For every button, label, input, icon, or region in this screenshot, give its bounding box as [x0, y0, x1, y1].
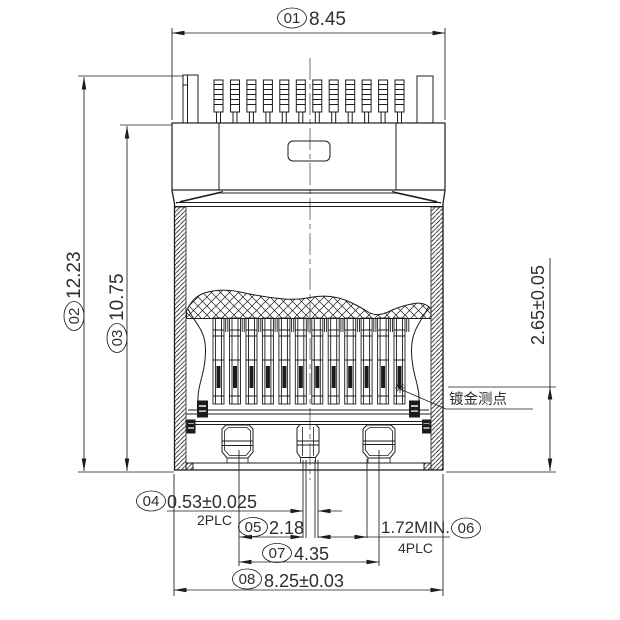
pin [346, 80, 355, 123]
pin [362, 80, 371, 123]
contact-strip [213, 318, 228, 404]
pin [296, 80, 305, 123]
dim-06: 1.72MIN. 06 4PLC [318, 518, 481, 556]
pin [263, 80, 272, 123]
dim-06-places: 4PLC [398, 540, 433, 556]
drawing-canvas: 01 8.45 02 12.23 03 10.75 [0, 0, 620, 620]
gold-test-point-label: 镀金测点 [449, 391, 507, 408]
contact-strip [262, 318, 277, 404]
test-point-marker [395, 383, 405, 393]
contact-strip [328, 318, 343, 404]
contacts [213, 318, 409, 404]
dim-01-value: 8.45 [309, 9, 346, 30]
cavity-wall-left [188, 309, 206, 403]
pin [395, 80, 404, 123]
dim-04-value: 0.53±0.025 [167, 492, 257, 512]
contact-strip [361, 318, 376, 404]
balloon-04-id: 04 [143, 493, 160, 510]
side-post-right [417, 76, 433, 123]
contact-strip [378, 318, 393, 404]
balloon-02-id: 02 [66, 308, 83, 325]
rubber-seal-crosshatch [187, 290, 432, 318]
side-post-left-detail [183, 75, 188, 123]
pin [313, 80, 322, 123]
dim-03-value: 10.75 [107, 273, 128, 321]
post-right-ribs [363, 441, 395, 445]
base-plate-lines [186, 410, 431, 425]
pin [247, 80, 256, 123]
dim-06-value: 1.72MIN. [381, 518, 450, 537]
dim-05-value: 2.18 [269, 518, 304, 538]
pin [280, 80, 289, 123]
balloon-05-id: 05 [245, 519, 262, 536]
housing-outline [172, 123, 445, 190]
contact-strip [230, 318, 245, 404]
cavity-wall-right [411, 306, 429, 403]
dim-right-height: 2.65±0.05 [446, 258, 556, 472]
dim-04-places: 2PLC [197, 512, 232, 528]
balloon-08-id: 08 [239, 571, 256, 588]
pin [214, 80, 223, 123]
pin [231, 80, 240, 123]
post-left-ribs [222, 441, 253, 446]
pin [379, 80, 388, 123]
dim-02-value: 12.23 [64, 251, 85, 299]
extension-lines [78, 76, 183, 472]
post-left-inner [225, 428, 251, 456]
dim-03: 03 10.75 [107, 125, 172, 471]
dim-07: 07 4.35 [239, 544, 379, 565]
shell-wall-left [175, 207, 187, 470]
dim-05: 05 2.18 [239, 518, 305, 539]
top-pins [183, 75, 433, 123]
housing-inner-edges [219, 123, 396, 190]
balloon-03-id: 03 [109, 330, 126, 347]
pin [329, 80, 338, 123]
shell-rim [175, 203, 444, 207]
side-post-left [183, 75, 198, 123]
contact-strip [312, 318, 327, 404]
dim-07-value: 4.35 [294, 544, 329, 564]
block-right [410, 401, 420, 417]
housing-slot [288, 141, 330, 161]
balloon-06-id: 06 [458, 520, 475, 537]
block-left [198, 401, 208, 417]
dim-right-value: 2.65±0.05 [528, 265, 548, 345]
contact-strip [295, 318, 310, 404]
contact-strip [394, 318, 409, 404]
dim-08-value: 8.25±0.03 [264, 571, 344, 591]
shell-wall-right [431, 207, 443, 470]
housing [172, 123, 445, 203]
post-middle-ribs [297, 441, 319, 445]
base-foot-left [186, 463, 193, 470]
base-foot-right [424, 463, 431, 470]
mounting-posts [186, 410, 431, 470]
dim-08: 08 8.25±0.03 [174, 569, 443, 591]
connector-body [172, 58, 445, 480]
balloon-01-id: 01 [284, 10, 301, 27]
post-middle-inner [303, 427, 314, 456]
technical-drawing: 01 8.45 02 12.23 03 10.75 [0, 0, 620, 620]
base-bottom-lines [186, 463, 431, 470]
contact-strip [279, 318, 294, 404]
balloon-07-id: 07 [269, 545, 286, 562]
contact-strip [345, 318, 360, 404]
post-feet-ticks [227, 458, 390, 464]
contact-strip [246, 318, 261, 404]
